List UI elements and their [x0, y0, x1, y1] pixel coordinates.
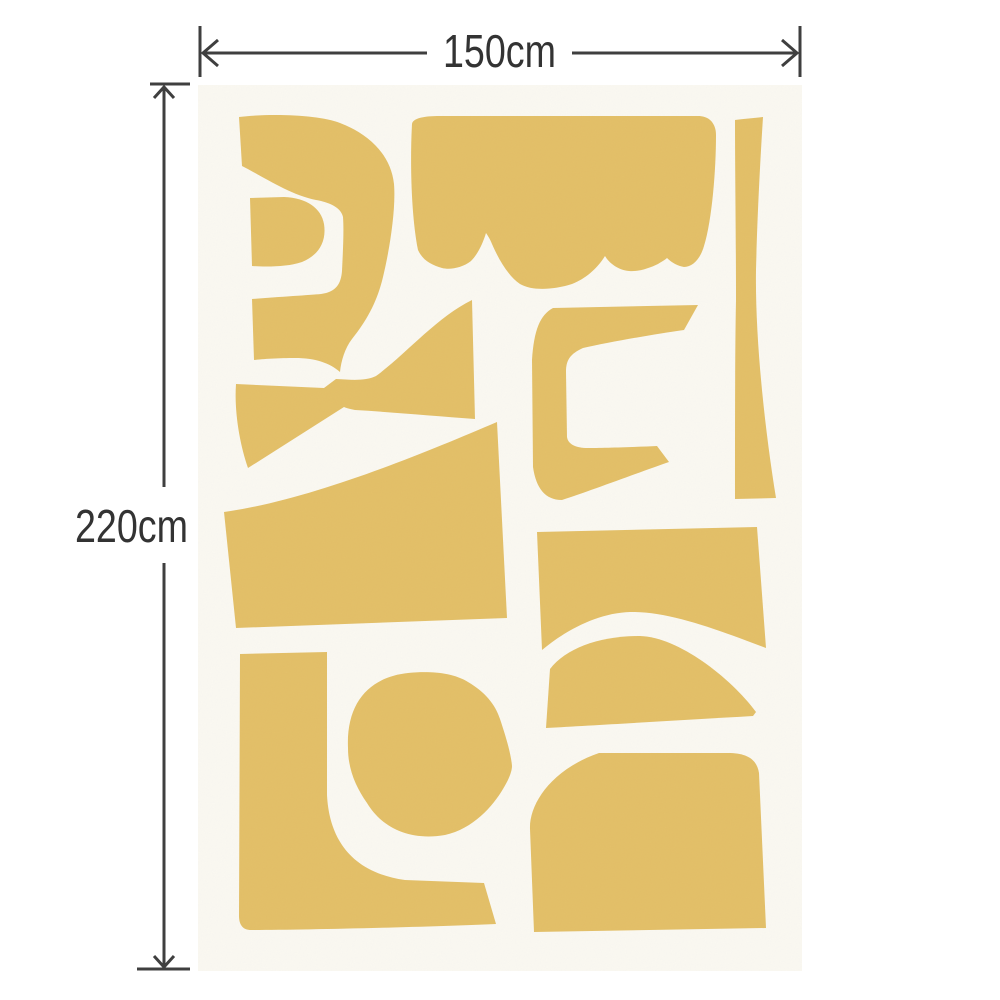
svg-text:150cm: 150cm	[443, 25, 556, 77]
svg-text:220cm: 220cm	[75, 500, 188, 552]
